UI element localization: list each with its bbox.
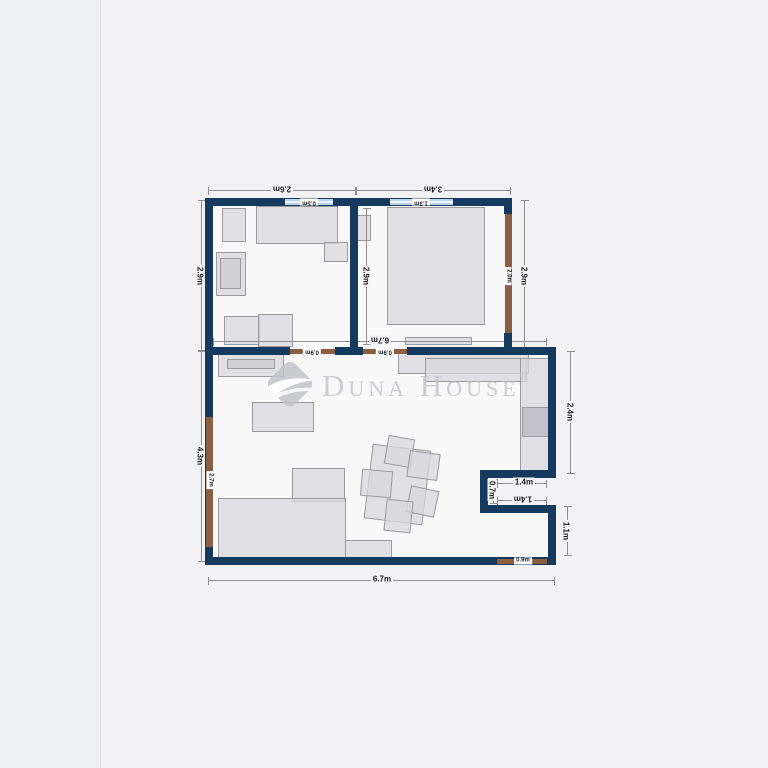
dim-label-top-right: 3.4m: [422, 185, 444, 194]
wall-interior-a: [205, 347, 290, 355]
wall-left-upper: [205, 198, 213, 355]
wall-right-top-stub: [504, 198, 512, 214]
background-band: [0, 0, 100, 768]
wall-right-living-upper: [548, 347, 556, 478]
chair: [383, 499, 413, 534]
dim-label-interior-width: 6.7m: [369, 336, 391, 345]
chair: [406, 450, 440, 481]
bed-single-head: [258, 314, 293, 347]
dim-label-notch-bottom: 1.4m: [512, 495, 534, 504]
wall-notch-bottom: [480, 505, 556, 513]
background-divider: [100, 0, 101, 768]
watermark: Duna House®: [262, 356, 512, 416]
dim-label-window-right: 1.3m: [412, 199, 430, 206]
armchair-seat: [220, 258, 241, 289]
wall-interior-c: [407, 347, 556, 355]
dim-label-mid-vertical: 2.9m: [362, 265, 371, 287]
dim-label-notch-height: 0.7m: [488, 479, 497, 501]
wall-top: [205, 198, 512, 206]
dim-label-left-opening: 2.7m: [207, 471, 214, 489]
dim-label-right-living: 2.4m: [566, 401, 575, 423]
dim-label-left-lower: 4.3m: [196, 445, 205, 467]
wardrobe-long: [256, 206, 338, 244]
kitchen-appliance: [522, 407, 550, 437]
dim-label-right-opening: 2.0m: [505, 267, 512, 285]
armchair: [216, 252, 246, 296]
dim-label-window-left: 0.5m: [300, 199, 318, 206]
chair: [360, 469, 393, 499]
dim-label-right-upper: 2.9m: [520, 265, 529, 287]
dim-label-notch-top: 1.4m: [513, 478, 535, 487]
sofa-chaise: [292, 468, 345, 502]
tv-stand: [345, 540, 392, 558]
dim-label-door-left: 0.9m: [303, 348, 321, 355]
duna-house-logo-icon: [262, 356, 318, 412]
sofa: [218, 498, 346, 559]
dim-label-door-right: 0.9m: [376, 348, 394, 355]
wall-interior-b: [335, 347, 363, 355]
dim-label-top-left: 2.6m: [271, 185, 293, 194]
watermark-brand: Duna House®: [322, 368, 527, 404]
dim-label-right-lower: 1.1m: [562, 520, 571, 542]
registered-mark: ®: [520, 370, 528, 381]
dim-label-door-bottom: 0.9m: [514, 558, 532, 565]
dim-label-bottom-width: 6.7m: [371, 575, 393, 584]
closet: [357, 215, 371, 241]
dim-label-left-upper: 2.9m: [196, 265, 205, 287]
wall-right-living-lower: [548, 505, 556, 565]
wall-divider: [350, 198, 358, 355]
floor-plan: 2.6m 3.4m 0.5m 1.3m 2.9m 4.3m 2.7m 2.9m …: [0, 0, 768, 768]
nightstand: [324, 242, 348, 262]
wardrobe: [222, 208, 246, 242]
bed-double: [387, 207, 485, 325]
